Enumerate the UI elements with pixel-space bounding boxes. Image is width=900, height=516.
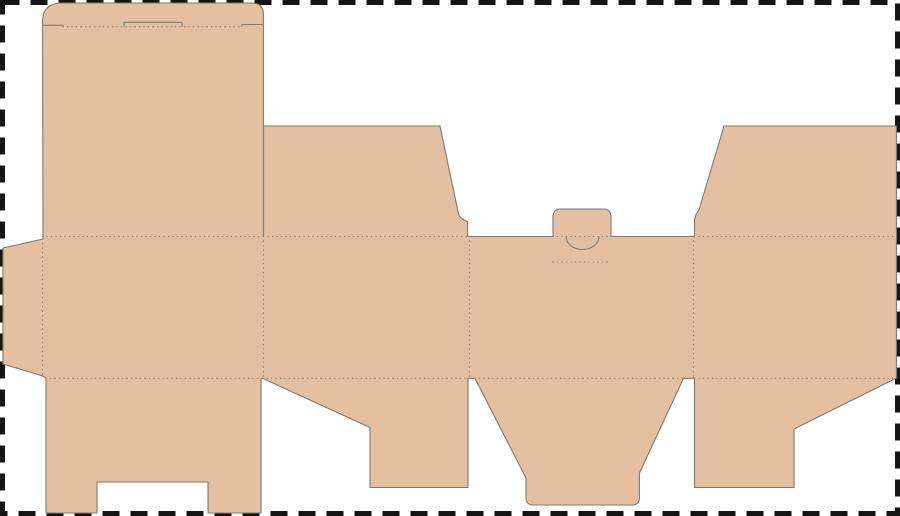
dieline-canvas (0, 0, 900, 516)
box-blank (3, 3, 897, 513)
artboard (0, 0, 900, 516)
